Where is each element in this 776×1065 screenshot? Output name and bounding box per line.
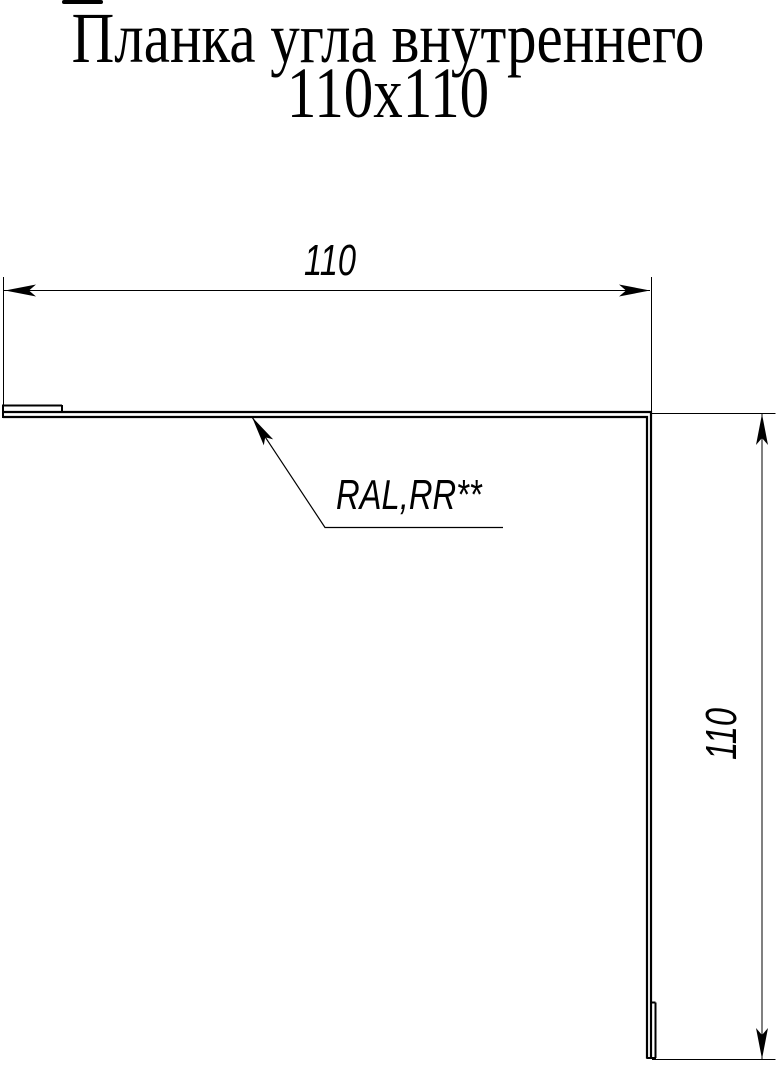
width-dimension-value: 110 [300, 239, 359, 283]
profile-inner-contour [3, 417, 647, 1059]
profile-outer-contour [3, 412, 651, 1059]
material-callout-label: RAL,RR** [336, 474, 482, 516]
top-dimension [4, 277, 652, 411]
drawing-page: Планка угла внутреннего 110х110 [0, 0, 776, 1065]
leader-arrow [252, 417, 273, 445]
profile-outline [3, 405, 656, 1059]
height-dimension-value: 110 [700, 704, 744, 763]
technical-drawing [0, 0, 776, 1065]
